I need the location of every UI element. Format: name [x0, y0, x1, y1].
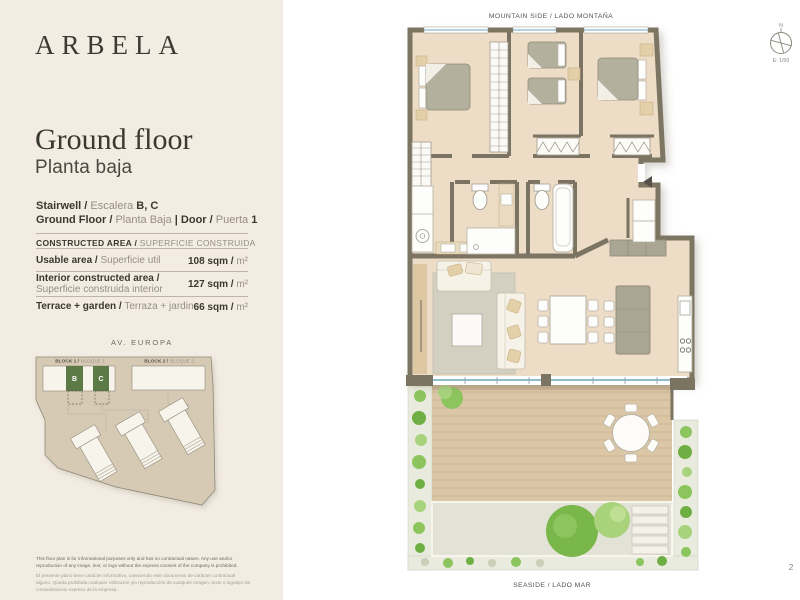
- area-row-terrace: Terrace + garden / Terraza + jardin 66 s…: [36, 298, 248, 316]
- floor-plan: MOUNTAIN SIDE / LADO MONTAÑA SEASIDE / L…: [283, 0, 800, 600]
- divider: [36, 248, 248, 249]
- mountain-side-label: MOUNTAIN SIDE / LADO MONTAÑA: [489, 11, 613, 20]
- area-row-interior: Interior constructed area / Superficie c…: [36, 273, 248, 295]
- disclaimer-es: El presente plano tiene carácter informa…: [36, 573, 251, 594]
- window-bench: [413, 264, 427, 374]
- coffee-table: [452, 314, 482, 346]
- entry-closet: [633, 200, 655, 221]
- kitchen-sink: [680, 301, 690, 315]
- block-2-building: [132, 366, 205, 390]
- dining-table: [550, 296, 586, 344]
- legal-disclaimer: This floor plan is for informational pur…: [36, 556, 251, 594]
- stairwell-line: Stairwell / Escalera B, C: [36, 199, 257, 213]
- toilet: [535, 191, 549, 210]
- page-number: 2: [789, 562, 794, 572]
- stairwell-b-label: B: [72, 376, 77, 383]
- area-table-header: CONSTRUCTED AREA / SUPERFICIE CONSTRUIDA: [36, 238, 256, 248]
- disclaimer-en: This floor plan is for informational pur…: [36, 556, 251, 570]
- block-2-label-es: BLOQUE 2: [170, 359, 194, 365]
- block-1-label-en: BLOCK 1 /: [55, 359, 79, 365]
- terrace-garden: [408, 384, 698, 570]
- site-plan-map: B C BLOCK 1 / BLOQUE 1 BLOCK 2 / BLOQUE …: [24, 348, 256, 538]
- divider: [36, 296, 248, 297]
- sofa-top: [437, 261, 491, 291]
- kitchen-island: [616, 286, 650, 354]
- shower: [467, 228, 515, 254]
- toilet: [473, 191, 487, 210]
- bedroom-windows: [424, 27, 648, 33]
- sofa-right: [497, 293, 525, 369]
- scale-label: E: 1/50: [773, 58, 790, 64]
- dining-area: [538, 296, 598, 344]
- block-2-label-en: BLOCK 2 /: [144, 359, 168, 365]
- stairwell-c-label: C: [98, 376, 103, 383]
- compass-icon: N E: 1/50: [771, 23, 792, 64]
- garden-steps: [632, 506, 668, 554]
- floor-door-line: Ground Floor / Planta Baja | Door / Puer…: [36, 213, 257, 227]
- page-title: Ground floor: [35, 123, 192, 157]
- seaside-label: SEASIDE / LADO MAR: [513, 582, 591, 589]
- divider: [36, 233, 248, 234]
- brand-logo: ARBELA: [35, 30, 185, 61]
- unit-info: Stairwell / Escalera B, C Ground Floor /…: [36, 199, 257, 227]
- entry-door-opening: [638, 164, 645, 182]
- wall-corner-right: [670, 378, 695, 390]
- area-row-usable: Usable area / Superficie util 108 sqm / …: [36, 252, 248, 270]
- street-label: AV. EUROPA: [36, 338, 248, 347]
- apartment: [406, 27, 695, 390]
- page-subtitle: Planta baja: [35, 157, 132, 179]
- sidebar: ARBELA Ground floor Planta baja Stairwel…: [0, 0, 283, 600]
- brochure-page: ARBELA Ground floor Planta baja Stairwel…: [0, 0, 800, 600]
- block-1-label-es: BLOQUE 1: [81, 359, 105, 365]
- wall-corner-left: [406, 375, 433, 386]
